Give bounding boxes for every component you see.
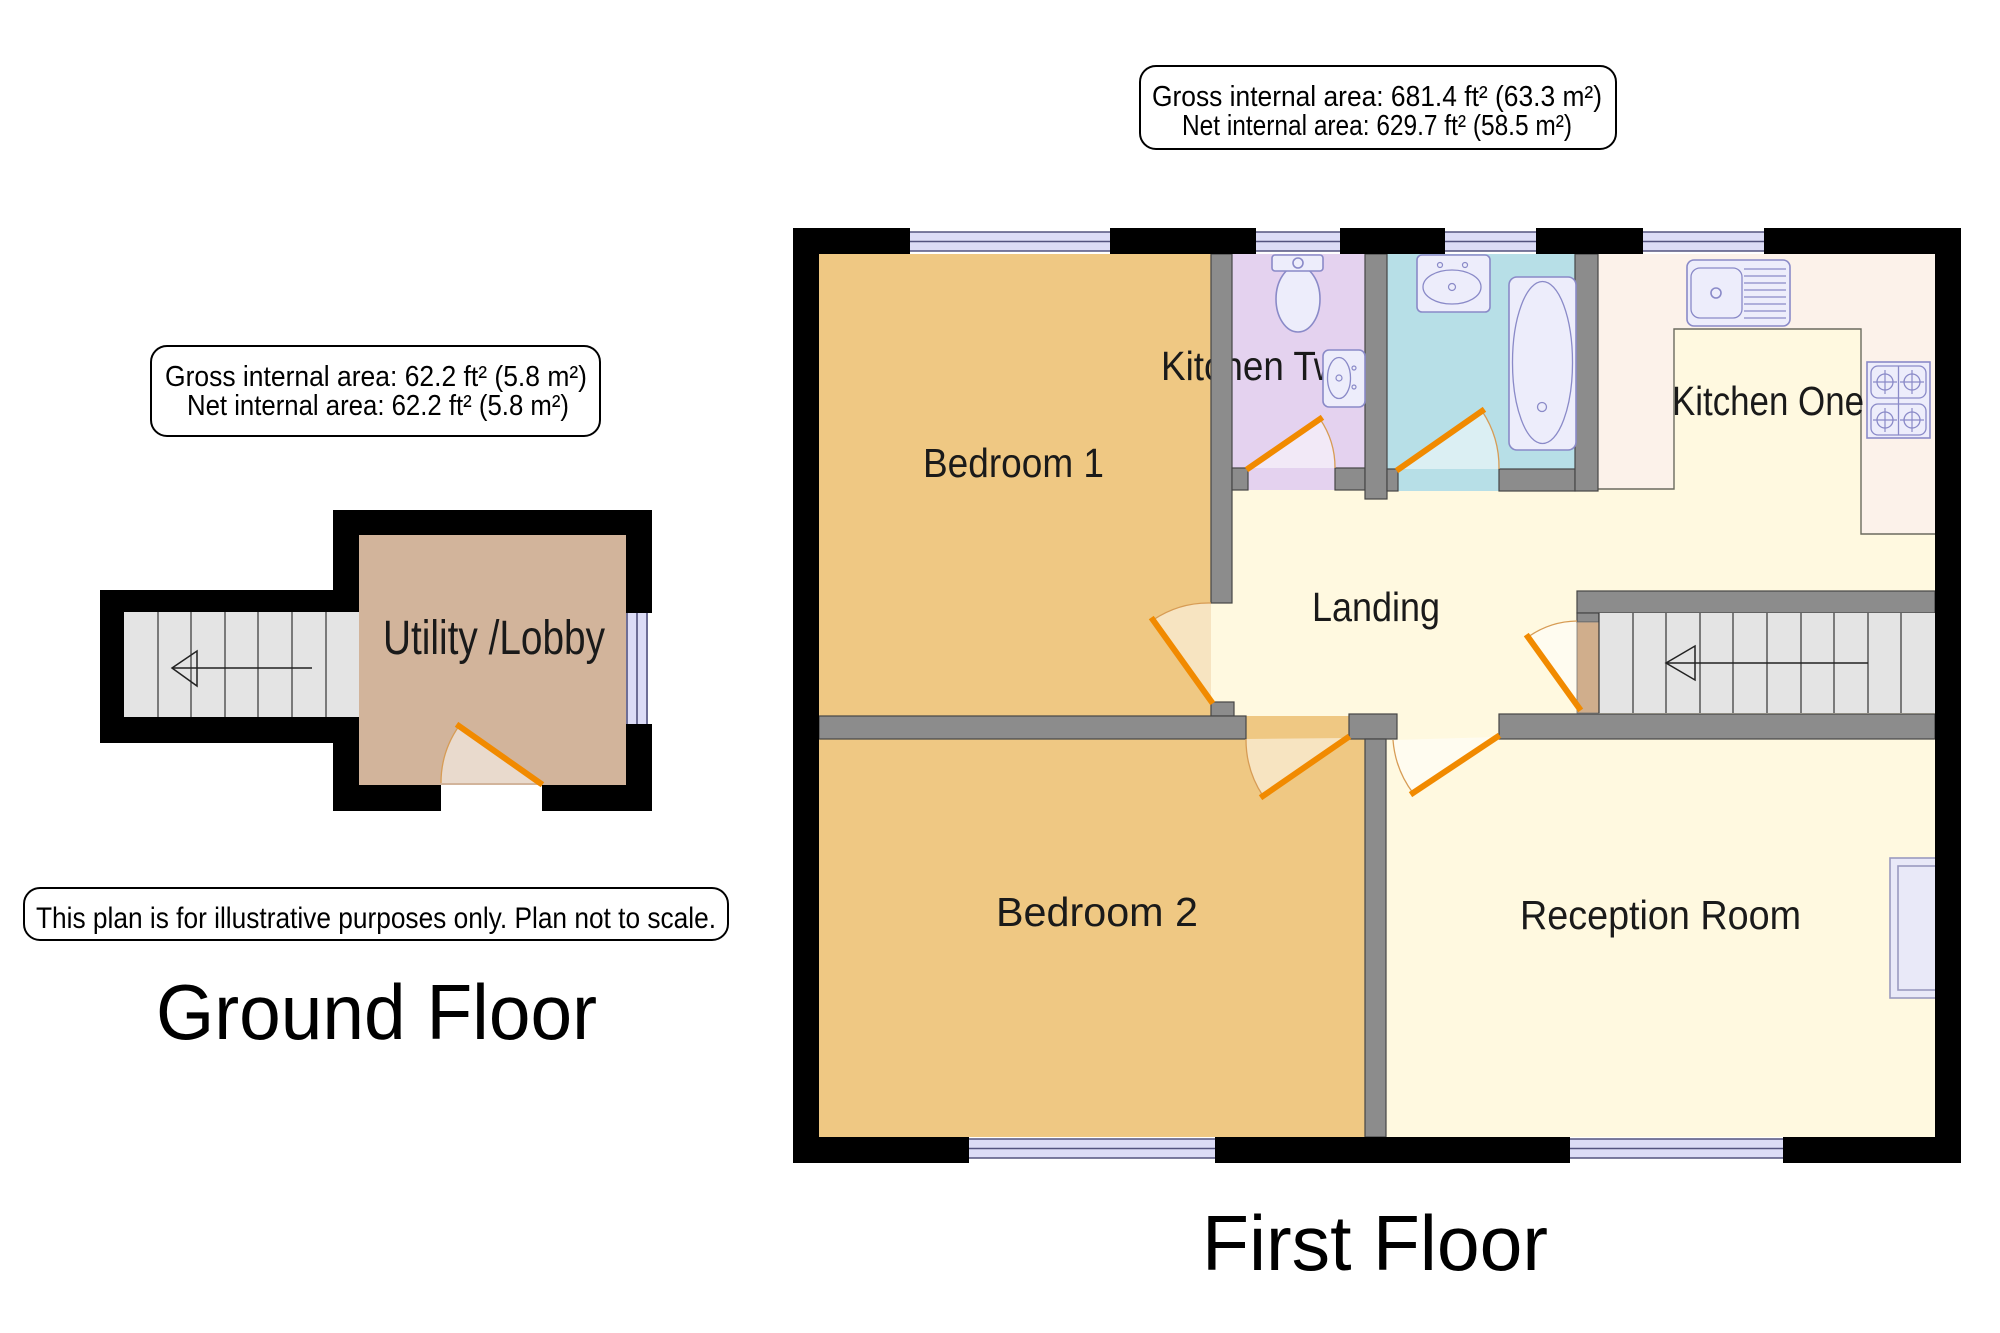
svg-text:Reception Room: Reception Room — [1520, 892, 1801, 938]
svg-text:Gross internal area: 681.4 ft²: Gross internal area: 681.4 ft² (63.3 m²) — [1152, 81, 1602, 113]
svg-text:Ground Floor: Ground Floor — [156, 968, 597, 1056]
svg-text:Bedroom 1: Bedroom 1 — [923, 440, 1104, 486]
svg-text:Landing: Landing — [1312, 584, 1440, 630]
svg-text:This plan is for illustrative: This plan is for illustrative purposes o… — [36, 902, 716, 935]
svg-text:Gross internal area: 62.2 ft²: Gross internal area: 62.2 ft² (5.8 m²) — [165, 361, 587, 393]
svg-text:First Floor: First Floor — [1202, 1199, 1548, 1287]
svg-text:Utility /Lobby: Utility /Lobby — [383, 612, 605, 665]
svg-text:Net internal area: 629.7 ft² (: Net internal area: 629.7 ft² (58.5 m²) — [1182, 110, 1572, 142]
svg-text:Net internal area: 62.2 ft² (5: Net internal area: 62.2 ft² (5.8 m²) — [187, 390, 569, 422]
svg-text:Bedroom 2: Bedroom 2 — [996, 889, 1198, 935]
svg-text:Kitchen One: Kitchen One — [1672, 378, 1864, 424]
